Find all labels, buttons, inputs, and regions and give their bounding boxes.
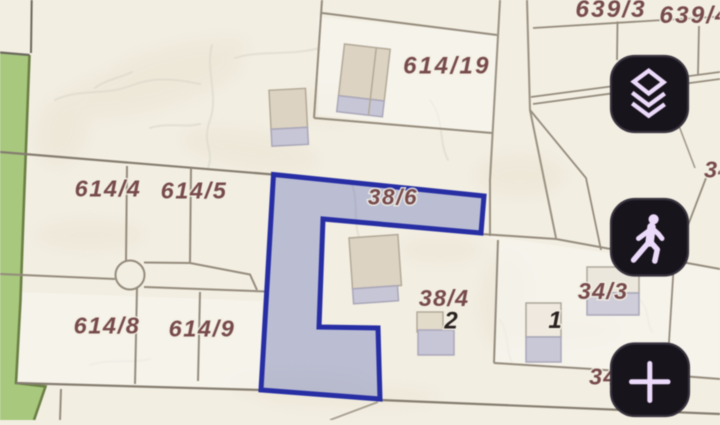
svg-text:614/9: 614/9 <box>169 316 236 342</box>
svg-text:614/8: 614/8 <box>74 313 141 339</box>
svg-text:38/6: 38/6 <box>368 185 418 210</box>
svg-text:34/3: 34/3 <box>578 278 629 304</box>
svg-text:34: 34 <box>704 157 720 183</box>
svg-text:2: 2 <box>443 308 458 335</box>
svg-text:614/5: 614/5 <box>161 178 228 204</box>
svg-text:614/19: 614/19 <box>403 53 491 80</box>
svg-text:639/3: 639/3 <box>575 0 646 23</box>
svg-text:639/4: 639/4 <box>659 2 720 29</box>
svg-text:614/4: 614/4 <box>75 176 142 202</box>
svg-text:1: 1 <box>548 307 561 334</box>
